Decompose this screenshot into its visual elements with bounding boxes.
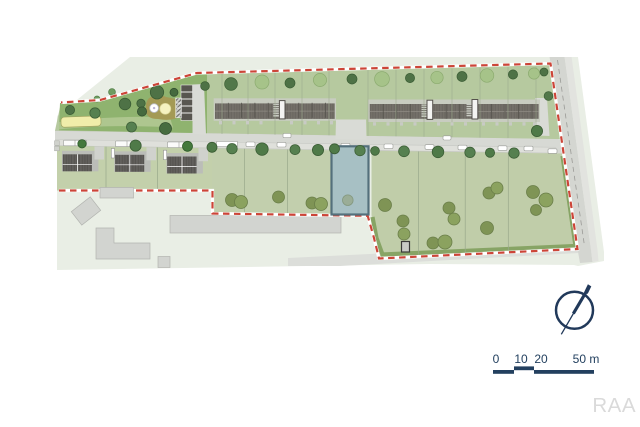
svg-text:RAA: RAA <box>592 394 636 417</box>
svg-text:0: 0 <box>493 352 500 366</box>
svg-text:10: 10 <box>514 352 528 366</box>
svg-text:50 m: 50 m <box>573 352 600 366</box>
svg-text:20: 20 <box>534 352 548 366</box>
